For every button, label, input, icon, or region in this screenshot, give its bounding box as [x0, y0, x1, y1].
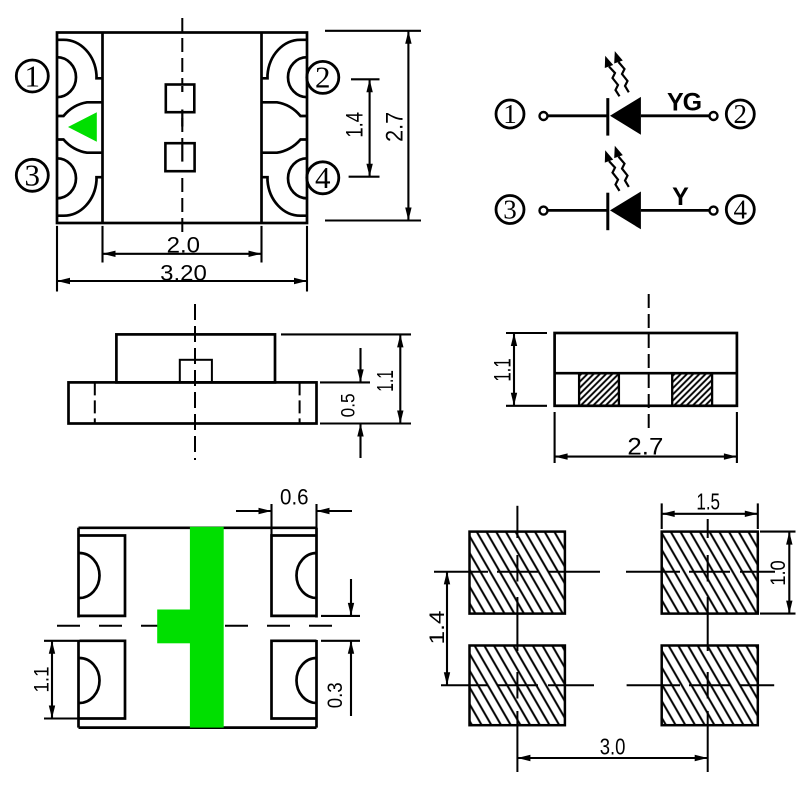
svg-text:4: 4: [315, 160, 331, 195]
svg-text:1.4: 1.4: [341, 112, 368, 138]
svg-text:0.5: 0.5: [339, 393, 360, 417]
svg-text:1.1: 1.1: [372, 370, 398, 392]
svg-text:Y: Y: [672, 183, 689, 211]
svg-text:3.0: 3.0: [600, 734, 626, 760]
svg-text:YG: YG: [667, 89, 701, 117]
svg-text:2: 2: [734, 99, 748, 129]
svg-text:2: 2: [315, 60, 331, 95]
svg-text:2.7: 2.7: [627, 433, 663, 460]
svg-text:1.4: 1.4: [426, 610, 449, 644]
svg-text:3.20: 3.20: [160, 260, 207, 285]
svg-text:3: 3: [25, 158, 41, 193]
svg-text:1: 1: [25, 58, 41, 93]
svg-text:0.3: 0.3: [324, 682, 347, 708]
svg-text:2.0: 2.0: [167, 233, 200, 258]
svg-text:2.7: 2.7: [381, 112, 408, 142]
svg-text:1.0: 1.0: [767, 560, 790, 586]
svg-text:4: 4: [734, 195, 748, 225]
svg-text:1.1: 1.1: [490, 358, 517, 381]
svg-text:1.5: 1.5: [696, 488, 720, 514]
svg-text:3: 3: [503, 195, 517, 225]
svg-text:0.6: 0.6: [280, 484, 309, 509]
svg-text:1.1: 1.1: [31, 667, 54, 693]
svg-text:1: 1: [503, 99, 517, 129]
